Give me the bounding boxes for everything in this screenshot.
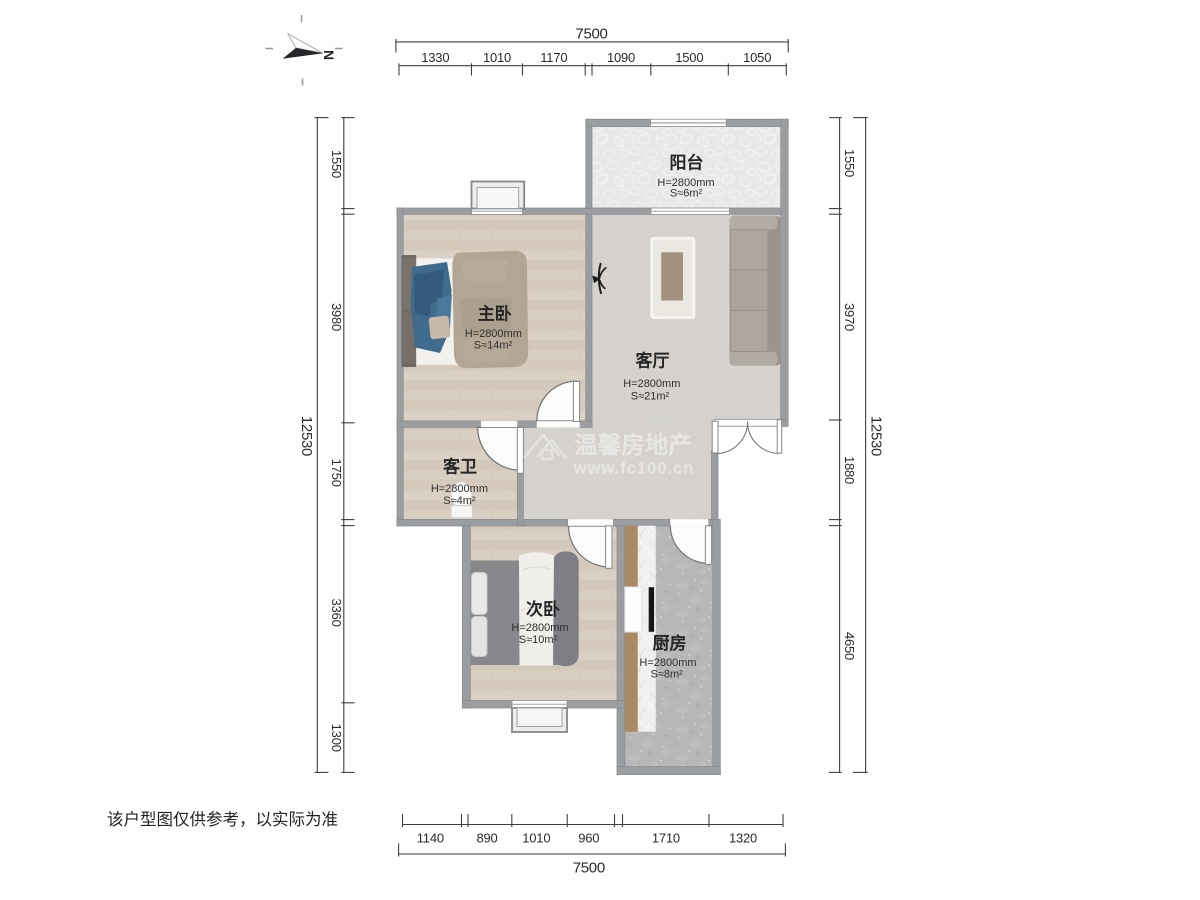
svg-text:3970: 3970: [842, 303, 857, 331]
svg-text:1010: 1010: [483, 50, 511, 65]
svg-text:www.fc100.cn: www.fc100.cn: [573, 460, 695, 478]
svg-text:7500: 7500: [573, 860, 605, 877]
svg-text:1550: 1550: [842, 149, 857, 177]
svg-text:12530: 12530: [298, 416, 315, 456]
svg-text:12530: 12530: [868, 416, 885, 456]
svg-text:1750: 1750: [329, 459, 344, 487]
svg-text:1140: 1140: [417, 831, 444, 846]
svg-text:阳台: 阳台: [670, 153, 704, 173]
svg-text:S≈4m²: S≈4m²: [443, 495, 476, 507]
svg-text:1010: 1010: [522, 831, 550, 846]
svg-text:1090: 1090: [607, 50, 635, 65]
svg-text:温馨房地产: 温馨房地产: [574, 431, 692, 458]
svg-text:1050: 1050: [743, 50, 771, 65]
svg-text:890: 890: [476, 831, 497, 846]
svg-text:1550: 1550: [329, 150, 344, 178]
svg-text:客卫: 客卫: [442, 457, 477, 477]
svg-text:3980: 3980: [329, 303, 344, 331]
svg-text:1880: 1880: [842, 456, 857, 484]
svg-text:S≈10m²: S≈10m²: [519, 634, 558, 646]
svg-text:S≈6m²: S≈6m²: [670, 188, 703, 200]
svg-text:3360: 3360: [329, 599, 344, 627]
svg-text:该户型图仅供参考，以实际为准: 该户型图仅供参考，以实际为准: [107, 810, 338, 829]
svg-text:H=2800mm: H=2800mm: [639, 657, 696, 669]
svg-text:1330: 1330: [421, 50, 449, 65]
svg-text:H=2800mm: H=2800mm: [465, 328, 522, 340]
svg-text:1320: 1320: [729, 831, 757, 846]
svg-text:客厅: 客厅: [635, 351, 670, 371]
svg-text:S≈8m²: S≈8m²: [651, 668, 684, 680]
svg-text:1170: 1170: [540, 50, 567, 65]
svg-text:1710: 1710: [652, 831, 680, 846]
svg-text:960: 960: [578, 831, 599, 846]
svg-text:H=2800mm: H=2800mm: [623, 378, 680, 390]
svg-text:1500: 1500: [675, 50, 703, 65]
svg-text:主卧: 主卧: [478, 304, 512, 324]
svg-text:1300: 1300: [329, 724, 344, 752]
svg-text:N: N: [321, 50, 337, 60]
svg-text:次卧: 次卧: [526, 599, 560, 619]
svg-text:H=2800mm: H=2800mm: [511, 622, 568, 634]
svg-text:S≈14m²: S≈14m²: [474, 340, 513, 352]
svg-text:7500: 7500: [575, 26, 607, 43]
svg-text:S≈21m²: S≈21m²: [631, 391, 670, 403]
svg-text:4650: 4650: [842, 632, 857, 660]
svg-text:厨房: 厨房: [653, 633, 687, 653]
svg-text:H=2800mm: H=2800mm: [431, 483, 488, 495]
